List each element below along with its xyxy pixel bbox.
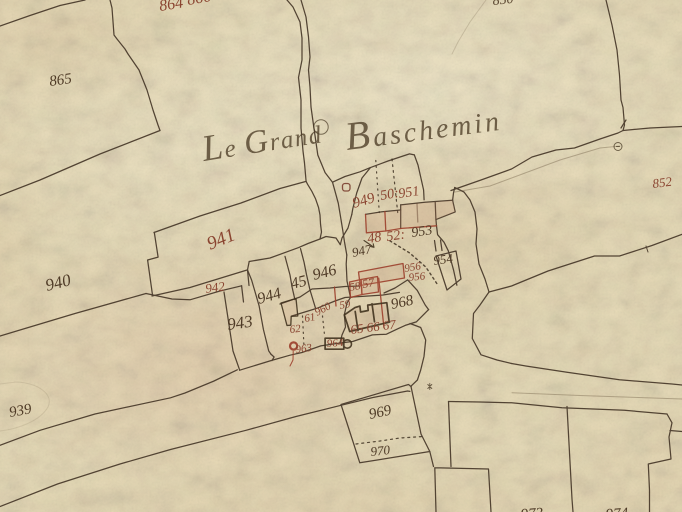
svg-text:953: 953 xyxy=(410,223,433,241)
svg-text:942: 942 xyxy=(204,278,226,296)
svg-text:974: 974 xyxy=(605,505,629,512)
svg-text:943: 943 xyxy=(226,312,254,334)
svg-text:865: 865 xyxy=(48,71,73,90)
svg-text:964: 964 xyxy=(326,337,344,350)
svg-text:970: 970 xyxy=(370,442,391,459)
svg-text:973: 973 xyxy=(520,505,544,512)
svg-text:62: 62 xyxy=(289,323,302,336)
svg-text:52:: 52: xyxy=(385,228,406,245)
svg-text:852: 852 xyxy=(652,174,674,191)
svg-text:48: 48 xyxy=(366,230,382,247)
svg-text:951: 951 xyxy=(397,184,420,202)
svg-text:956: 956 xyxy=(408,270,426,284)
svg-text:963: 963 xyxy=(295,342,314,356)
svg-text:954: 954 xyxy=(432,250,454,268)
svg-text:61: 61 xyxy=(303,311,316,325)
